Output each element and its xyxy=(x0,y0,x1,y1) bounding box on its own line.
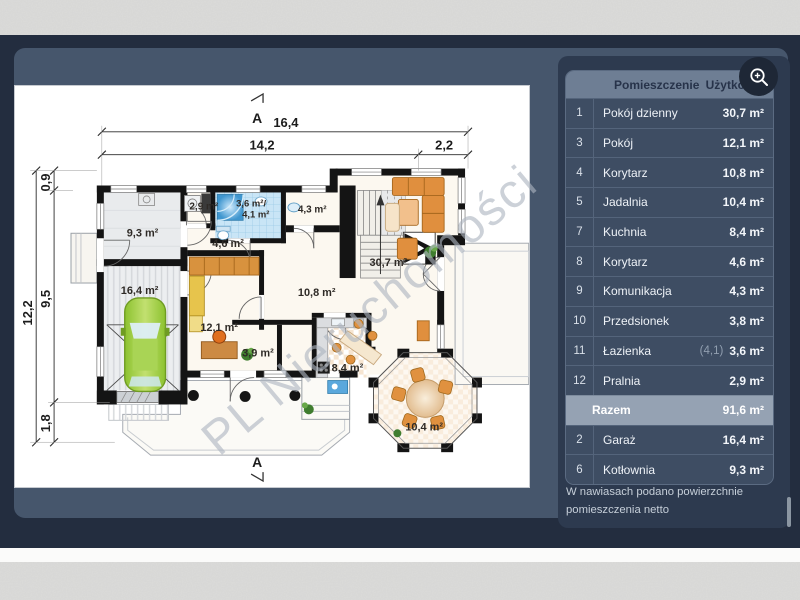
dim-left-total: 12,2 xyxy=(20,300,35,325)
room-area-label: 12,1 m² xyxy=(200,322,238,334)
table-row: 4 Korytarz 10,8 m² xyxy=(566,157,773,187)
room-area-label: 9,3 m² xyxy=(127,227,159,239)
room-area-label: 2,9 m² xyxy=(189,201,218,212)
room-area-label: 3,9 m² xyxy=(242,348,274,360)
table-row: 10 Przedsionek 3,8 m² xyxy=(566,306,773,336)
room-area-label: 8,4 m² xyxy=(332,363,364,375)
dim-top-main: 14,2 xyxy=(249,138,274,153)
table-row: 5 Jadalnia 10,4 m² xyxy=(566,187,773,217)
dim-top-total: 16,4 xyxy=(273,115,299,130)
floor-plan: 9,3 m² 2,9 m² 3,6 m²/ 4,1 m² 4,3 m² 4,6 … xyxy=(14,85,530,488)
footnote: W nawiasach podano powierzchnie pomieszc… xyxy=(566,484,786,519)
zoom-in-button[interactable] xyxy=(739,57,778,96)
section-marker-bottom: A xyxy=(252,454,262,470)
room-area-label: 10,8 m² xyxy=(298,287,336,299)
room-area-label: 3,6 m²/ xyxy=(236,198,266,209)
table-row: 2 Garaż 16,4 m² xyxy=(566,425,773,455)
table-row: 12 Pralnia 2,9 m² xyxy=(566,365,773,395)
scrollbar-thumb[interactable] xyxy=(787,497,791,527)
room-area-label: 16,4 m² xyxy=(121,285,159,297)
table-row: 1 Pokój dzienny 30,7 m² xyxy=(566,98,773,128)
area-table: Pomieszczenie Użytkowa 1 Pokój dzienny 3… xyxy=(565,70,774,485)
section-marker-top: A xyxy=(252,110,262,126)
dim-left-main: 9,5 xyxy=(38,290,53,308)
room-area-label: 4,3 m² xyxy=(298,204,327,215)
dim-left-top: 0,9 xyxy=(38,174,53,192)
dim-top-side: 2,2 xyxy=(435,138,453,153)
listing-image: 9,3 m² 2,9 m² 3,6 m²/ 4,1 m² 4,3 m² 4,6 … xyxy=(0,0,800,600)
header-room-column: Pomieszczenie xyxy=(614,78,699,92)
table-row: 9 Komunikacja 4,3 m² xyxy=(566,276,773,306)
total-row: Razem 91,6 m² xyxy=(566,395,773,425)
room-area-label: 4,6 m² xyxy=(212,238,244,250)
zoom-in-icon xyxy=(748,66,770,88)
room-area-label: 10,4 m² xyxy=(405,421,443,433)
room-area-label: 4,1 m² xyxy=(242,209,269,220)
dim-left-bottom: 1,8 xyxy=(38,414,53,432)
room-table-panel: Pomieszczenie Użytkowa 1 Pokój dzienny 3… xyxy=(558,56,790,528)
table-row: 11 Łazienka (4,1) 3,6 m² xyxy=(566,336,773,366)
photo-bottom-band xyxy=(0,546,800,562)
table-row: 3 Pokój 12,1 m² xyxy=(566,128,773,158)
room-area-label: 30,7 m² xyxy=(370,257,408,269)
floor-plan-drawing: 9,3 m² 2,9 m² 3,6 m²/ 4,1 m² 4,3 m² 4,6 … xyxy=(15,86,529,487)
table-row: 7 Kuchnia 8,4 m² xyxy=(566,217,773,247)
table-row: 6 Kotłownia 9,3 m² xyxy=(566,454,773,484)
table-row: 8 Korytarz 4,6 m² xyxy=(566,246,773,276)
